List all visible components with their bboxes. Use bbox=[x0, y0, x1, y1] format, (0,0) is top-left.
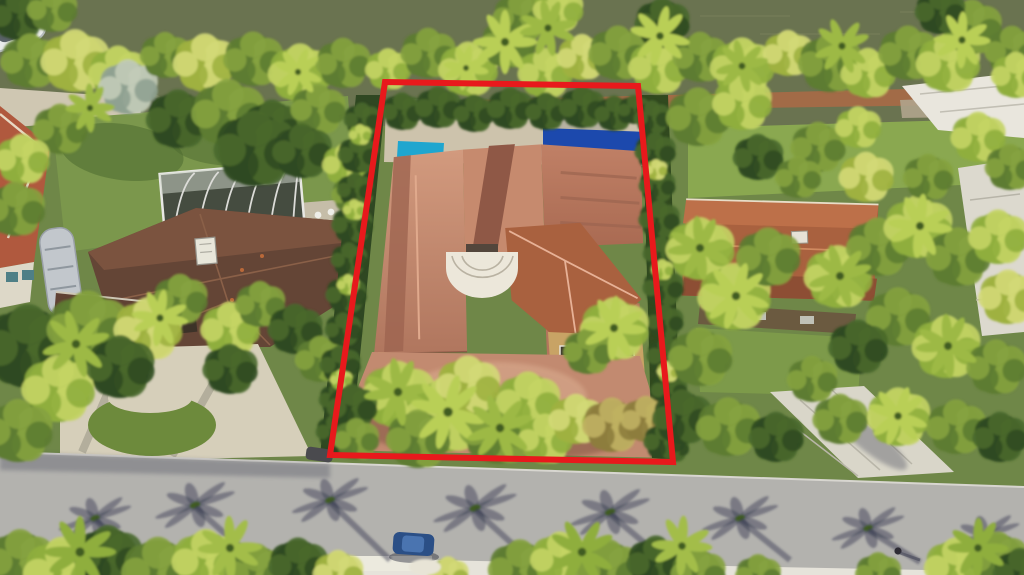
foliage-puff bbox=[28, 152, 50, 174]
foliage-puff bbox=[643, 434, 659, 450]
foliage-puff bbox=[75, 547, 84, 556]
foliage-puff bbox=[343, 206, 352, 215]
foliage-puff bbox=[337, 281, 346, 290]
foliage-puff bbox=[487, 100, 505, 118]
foliage-puff bbox=[968, 226, 991, 249]
foliage-puff bbox=[358, 400, 378, 420]
foliage-puff bbox=[835, 119, 853, 137]
foliage-puff bbox=[415, 99, 433, 117]
foliage-puff bbox=[934, 170, 954, 190]
foliage-puff bbox=[903, 168, 923, 188]
foliage-puff bbox=[41, 49, 68, 76]
foliage-puff bbox=[337, 147, 353, 163]
foliage-puff bbox=[295, 350, 315, 370]
foliage-puff bbox=[666, 105, 691, 130]
foliage-puff bbox=[559, 99, 577, 117]
car-roof bbox=[401, 535, 424, 552]
foliage-puff bbox=[315, 53, 337, 75]
foliage-puff bbox=[363, 132, 372, 141]
window bbox=[6, 272, 18, 282]
foliage-puff bbox=[846, 412, 868, 434]
foliage-puff bbox=[790, 137, 812, 159]
foliage-puff bbox=[324, 102, 346, 124]
foliage-puff bbox=[733, 148, 753, 168]
foliage-puff bbox=[267, 319, 289, 341]
foliage-puff bbox=[172, 549, 199, 575]
foliage-puff bbox=[272, 140, 295, 163]
foliage-puff bbox=[828, 336, 851, 359]
foliage-puff bbox=[453, 106, 469, 122]
foliage-puff bbox=[985, 158, 1005, 178]
foliage-puff bbox=[878, 42, 901, 65]
foliage-puff bbox=[588, 42, 611, 65]
foliage-puff bbox=[530, 548, 553, 571]
foliage-puff bbox=[66, 379, 95, 408]
foliage-puff bbox=[818, 372, 838, 392]
foliage-puff bbox=[400, 43, 422, 65]
foliage-puff bbox=[361, 433, 379, 451]
foliage-puff bbox=[668, 345, 693, 370]
far-left-wall bbox=[0, 262, 34, 308]
aerial-photo bbox=[0, 0, 1024, 575]
foliage-puff bbox=[344, 113, 358, 127]
foliage-puff bbox=[669, 316, 683, 330]
foliage-puff bbox=[582, 414, 605, 437]
foliage-puff bbox=[736, 245, 761, 270]
foliage-puff bbox=[322, 156, 340, 174]
foliage-puff bbox=[621, 410, 641, 430]
foliage-puff bbox=[186, 292, 208, 314]
foliage-puff bbox=[135, 79, 158, 102]
foliage-puff bbox=[525, 104, 541, 120]
foliage-puff bbox=[915, 2, 935, 22]
foliage-puff bbox=[331, 217, 347, 233]
foliage-puff bbox=[812, 409, 834, 431]
foliage-puff bbox=[0, 50, 23, 73]
blue-car bbox=[392, 532, 434, 557]
foliage-puff bbox=[787, 370, 807, 390]
foliage-puff bbox=[707, 348, 732, 373]
foliage-puff bbox=[696, 415, 721, 440]
foliage-puff bbox=[21, 376, 50, 405]
foliage-puff bbox=[872, 170, 894, 192]
foliage-puff bbox=[337, 183, 351, 197]
foliage-puff bbox=[594, 106, 609, 121]
foliage-puff bbox=[618, 104, 631, 117]
foliage-puff bbox=[330, 376, 339, 385]
foliage-puff bbox=[290, 99, 312, 121]
foliage-puff bbox=[316, 425, 330, 439]
foliage-puff bbox=[803, 171, 821, 189]
foliage-puff bbox=[668, 282, 684, 298]
window bbox=[22, 270, 34, 280]
foliage-puff bbox=[386, 427, 411, 452]
foliage-puff bbox=[557, 48, 577, 68]
foliage-puff bbox=[564, 2, 584, 22]
foliage-puff bbox=[202, 359, 224, 381]
foliage-puff bbox=[991, 66, 1011, 86]
foliage-puff bbox=[660, 146, 676, 162]
foliage-puff bbox=[236, 362, 258, 384]
foliage-puff bbox=[26, 422, 53, 449]
foliage-puff bbox=[146, 107, 171, 132]
foliage-puff bbox=[32, 119, 54, 141]
foliage-puff bbox=[748, 427, 770, 449]
foliage-puff bbox=[665, 267, 674, 276]
foliage-puff bbox=[235, 295, 255, 315]
foliage-puff bbox=[22, 201, 45, 224]
foliage-puff bbox=[926, 416, 949, 439]
foliage-puff bbox=[331, 253, 345, 267]
foliage-puff bbox=[626, 552, 649, 575]
foliage-puff bbox=[749, 95, 772, 118]
foliage-puff bbox=[978, 286, 1001, 309]
white-planter bbox=[409, 559, 441, 575]
foliage-puff bbox=[661, 180, 675, 194]
foliage-puff bbox=[775, 248, 800, 273]
foliage-puff bbox=[200, 318, 223, 341]
foliage-puff bbox=[223, 48, 246, 71]
foliage-puff bbox=[865, 339, 888, 362]
foliage-puff bbox=[782, 430, 804, 452]
foliage-puff bbox=[628, 56, 651, 79]
foliage-puff bbox=[191, 100, 220, 129]
foliage-puff bbox=[214, 134, 246, 166]
foliage-puff bbox=[972, 427, 994, 449]
foliage-puff bbox=[58, 2, 78, 22]
foliage-puff bbox=[173, 51, 198, 76]
aerial-photo-canvas bbox=[0, 0, 1024, 575]
foliage-puff bbox=[659, 167, 668, 176]
foliage-puff bbox=[319, 357, 335, 373]
foliage-puff bbox=[501, 38, 509, 46]
foliage-puff bbox=[140, 46, 160, 66]
foliage-puff bbox=[349, 131, 358, 140]
foliage-puff bbox=[325, 323, 339, 337]
foliage-puff bbox=[824, 140, 846, 162]
foliage-puff bbox=[950, 127, 972, 149]
foliage-puff bbox=[563, 342, 583, 362]
foliage-puff bbox=[863, 121, 881, 139]
foliage-puff bbox=[365, 61, 383, 79]
foliage-puff bbox=[916, 51, 941, 76]
foliage-puff bbox=[548, 409, 570, 431]
foliage-puff bbox=[838, 167, 860, 189]
foliage-puff bbox=[775, 169, 793, 187]
foliage-puff bbox=[712, 92, 735, 115]
foliage-puff bbox=[128, 358, 155, 385]
roof-skylight bbox=[195, 237, 217, 265]
foliage-puff bbox=[27, 0, 47, 20]
